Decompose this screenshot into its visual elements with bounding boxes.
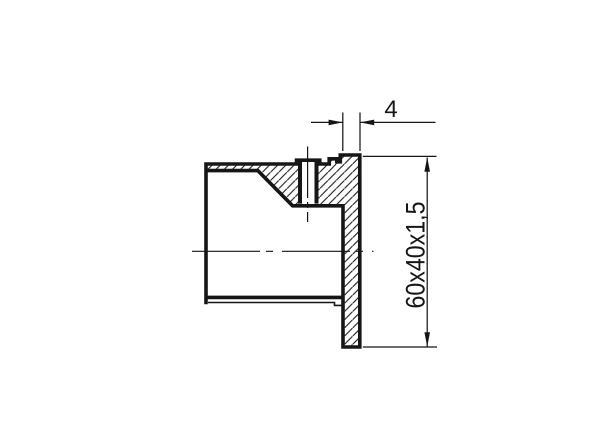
flange-thickness-label: 4: [384, 96, 397, 123]
arrowhead-top: [424, 157, 430, 172]
end-cap-section-drawing: 4 60x40x1,5: [0, 0, 600, 424]
bottom-wall-inner-edge: [208, 303, 342, 306]
drawing-canvas: 4 60x40x1,5: [0, 0, 600, 424]
screw-boss-hole-walls: [300, 159, 317, 204]
arrowhead-left: [329, 120, 343, 126]
dimension-tube-size: 60x40x1,5: [363, 156, 437, 347]
tube-size-label: 60x40x1,5: [401, 202, 431, 309]
dimension-flange-thickness: 4: [311, 96, 436, 151]
arrowhead-right: [360, 120, 374, 126]
arrowhead-bottom: [424, 332, 430, 347]
